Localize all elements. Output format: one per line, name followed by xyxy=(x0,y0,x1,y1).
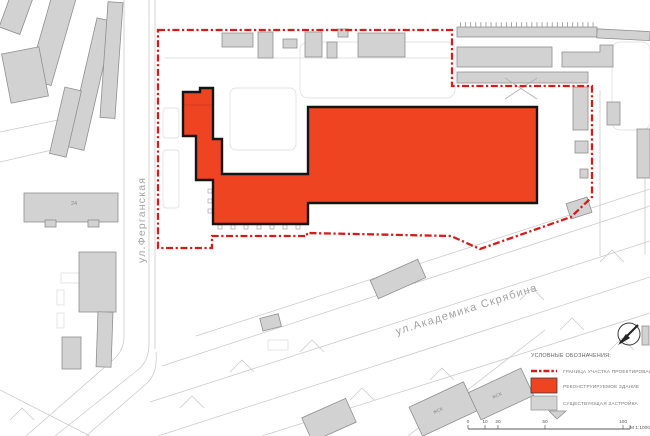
street-label-skryabina: ул.Академика Скрябина xyxy=(394,282,539,338)
parcel xyxy=(230,88,296,150)
road-line xyxy=(0,390,90,436)
legend-item-reconstructed: РЕКОНСТРУИРУЕМОЕ ЗДАНИЕ xyxy=(531,378,639,393)
red-fill-swatch xyxy=(531,378,557,393)
road-line xyxy=(0,120,58,132)
existing-building xyxy=(79,252,116,312)
legend-title: УСЛОВНЫЕ ОБОЗНАЧЕНИЯ: xyxy=(531,353,611,359)
existing-building xyxy=(283,39,297,48)
small-structure xyxy=(208,209,212,213)
hatch-mark xyxy=(560,318,584,330)
existing-building xyxy=(637,129,650,178)
small-structure xyxy=(218,225,222,229)
street-label-ferganskaya: ул.Ферганская xyxy=(136,177,148,263)
gray-fill-swatch xyxy=(531,396,557,410)
hatch-mark xyxy=(350,388,374,400)
existing-building xyxy=(302,398,356,436)
existing-building xyxy=(562,45,613,67)
reconstructed-building-shape xyxy=(183,88,537,224)
scale-ratio-label: М 1:1000 xyxy=(630,425,650,431)
site-plan-map: ул.Ферганская ул.Академика Скрябина 24 Ж… xyxy=(0,0,650,436)
legend-item-label: ГРАНИЦА УЧАСТКА ПРОЕКТИРОВАНИЯ xyxy=(563,369,650,374)
small-structure xyxy=(270,225,274,229)
existing-building xyxy=(457,27,597,37)
existing-building xyxy=(549,411,566,419)
legend-item-boundary: ГРАНИЦА УЧАСТКА ПРОЕКТИРОВАНИЯ xyxy=(531,369,650,374)
scale-tick-label: 10 xyxy=(482,419,488,425)
small-structure xyxy=(208,189,212,193)
parcel xyxy=(57,290,64,305)
existing-building xyxy=(573,87,588,130)
existing-building xyxy=(305,32,322,57)
legend: УСЛОВНЫЕ ОБОЗНАЧЕНИЯ: ГРАНИЦА УЧАСТКА ПР… xyxy=(531,353,650,410)
existing-building xyxy=(62,337,81,369)
existing-building xyxy=(409,382,477,436)
existing-building xyxy=(260,314,282,331)
existing-building xyxy=(457,47,552,67)
existing-building xyxy=(597,29,650,41)
legend-item-existing: СУЩЕСТВУЮЩАЯ ЗАСТРОЙКА xyxy=(531,396,639,410)
hatch-mark xyxy=(180,396,204,408)
small-structure xyxy=(283,225,287,229)
parcel xyxy=(163,150,179,208)
existing-building xyxy=(0,0,35,34)
small-structure xyxy=(208,199,212,203)
hatch-mark xyxy=(10,408,34,420)
site-plan: ул.Ферганская ул.Академика Скрябина 24 Ж… xyxy=(0,0,650,436)
scale-bar-ticks xyxy=(468,425,630,429)
parcel xyxy=(57,313,64,328)
parcel xyxy=(268,340,288,350)
existing-building xyxy=(88,220,99,227)
existing-building xyxy=(327,42,337,58)
existing-building xyxy=(457,72,588,83)
existing-building xyxy=(96,312,113,367)
small-structure xyxy=(296,225,300,229)
legend-item-label: СУЩЕСТВУЮЩАЯ ЗАСТРОЙКА xyxy=(563,399,639,406)
existing-building xyxy=(575,141,588,153)
existing-building xyxy=(358,33,405,57)
hatch-mark xyxy=(430,368,454,380)
scale-tick-label: 0 xyxy=(467,419,470,425)
existing-building xyxy=(24,193,118,222)
legend-item-label: РЕКОНСТРУИРУЕМОЕ ЗДАНИЕ xyxy=(563,384,639,389)
existing-building xyxy=(370,259,426,298)
road-line xyxy=(0,150,52,162)
scale-tick-label: 50 xyxy=(542,419,548,425)
existing-building xyxy=(607,102,620,125)
existing-building xyxy=(642,326,649,345)
small-structure xyxy=(257,225,261,229)
north-arrow-icon xyxy=(618,323,640,345)
building-label-24: 24 xyxy=(71,201,77,207)
existing-building xyxy=(222,33,253,47)
parcel xyxy=(163,108,179,138)
small-structure xyxy=(231,225,235,229)
hatch-mark xyxy=(230,360,254,372)
existing-building xyxy=(258,32,273,58)
existing-building xyxy=(580,169,588,178)
scale-tick-label: 20 xyxy=(495,419,501,425)
scale-bar: 0 10 20 50 100 М 1:1000 xyxy=(467,419,650,431)
existing-building xyxy=(45,220,56,227)
small-structure xyxy=(244,225,248,229)
scale-tick-label: 100 xyxy=(619,419,627,425)
